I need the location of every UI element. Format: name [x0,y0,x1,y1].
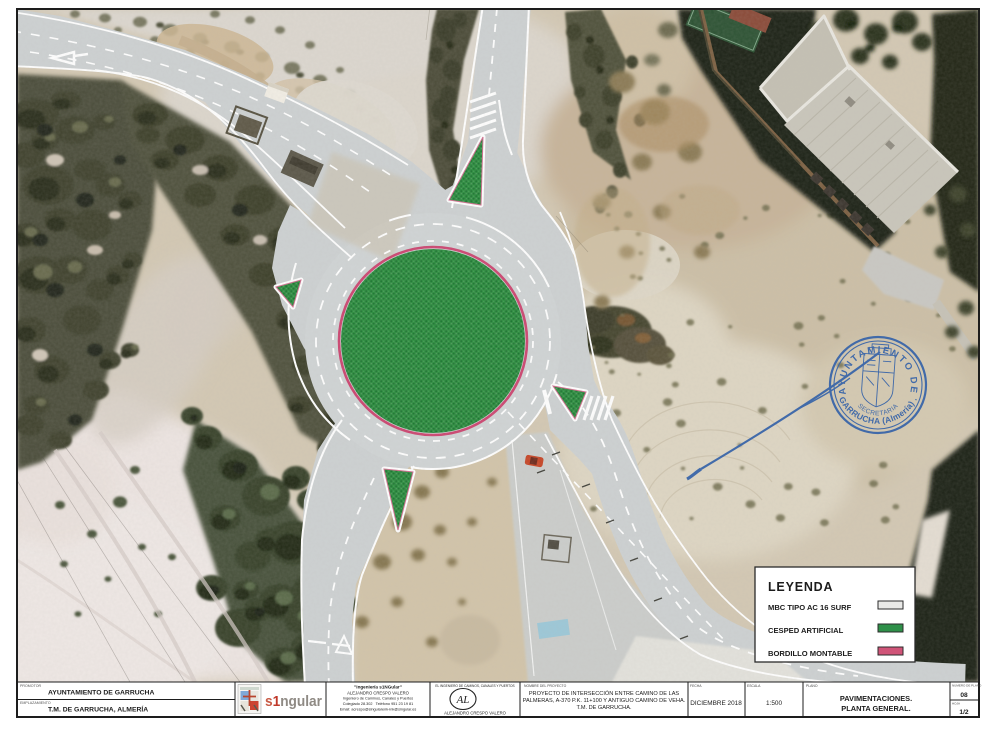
svg-text:Ingeniero de Caminos, Canales: Ingeniero de Caminos, Canales y Puertos [343,697,413,701]
svg-text:PALMERAS, A-370 P.K. 11+100 Y: PALMERAS, A-370 P.K. 11+100 Y ANTIGUO CA… [523,698,686,704]
svg-text:1:500: 1:500 [766,700,782,707]
svg-text:Email: acrespo@singularenk-ink: Email: acrespo@singularenk-ink@singular.… [340,708,417,712]
svg-text:EL INGENIERO DE CAMINOS, CANAL: EL INGENIERO DE CAMINOS, CANALES Y PUERT… [435,684,514,688]
svg-text:Colegiado 28.302 Teléfono 95: Colegiado 28.302 Teléfono 951 23 19 81 [343,702,414,706]
svg-text:NUMERO DE PLANO: NUMERO DE PLANO [952,684,982,688]
svg-text:"Ingeniería s1NGular": "Ingeniería s1NGular" [354,685,402,690]
svg-text:HOJA: HOJA [952,702,960,706]
svg-text:1/2: 1/2 [959,709,968,716]
svg-text:ALEJANDRO CRESPO VALERO: ALEJANDRO CRESPO VALERO [444,711,507,716]
svg-text:FECHA: FECHA [690,684,702,688]
svg-text:NOMBRE DEL PROYECTO: NOMBRE DEL PROYECTO [524,684,567,688]
svg-text:MBC TIPO AC 16 SURF: MBC TIPO AC 16 SURF [768,603,852,612]
svg-text:AYUNTAMIENTO DE GARRUCHA: AYUNTAMIENTO DE GARRUCHA [48,690,154,697]
svg-text:DICIEMBRE 2018: DICIEMBRE 2018 [690,700,742,707]
svg-text:ALEJANDRO CRESPO VALERO: ALEJANDRO CRESPO VALERO [347,691,410,696]
svg-text:BORDILLO MONTABLE: BORDILLO MONTABLE [768,649,852,658]
svg-text:T.M. DE GARRUCHA, ALMERÍA: T.M. DE GARRUCHA, ALMERÍA [48,705,148,714]
svg-text:T.M. DE GARRUCHA.: T.M. DE GARRUCHA. [576,705,631,711]
svg-text:PAVIMENTACIONES.: PAVIMENTACIONES. [840,694,912,703]
svg-text:EMPLAZAMIENTO: EMPLAZAMIENTO [20,701,51,705]
svg-text:CESPED ARTIFICIAL: CESPED ARTIFICIAL [768,626,844,635]
svg-text:PROMOTOR: PROMOTOR [20,684,42,688]
svg-text:ESCALA: ESCALA [747,684,761,688]
svg-text:AL: AL [456,694,470,706]
svg-text:PLANTA GENERAL.: PLANTA GENERAL. [841,704,910,713]
svg-text:PROYECTO DE INTERSECCIÓN ENTRE: PROYECTO DE INTERSECCIÓN ENTRE CAMINO DE… [529,690,680,697]
svg-text:LEYENDA: LEYENDA [768,580,833,594]
svg-text:s1ngular: s1ngular [265,693,322,710]
svg-text:PLANO: PLANO [806,684,818,688]
svg-text:08: 08 [960,692,968,699]
